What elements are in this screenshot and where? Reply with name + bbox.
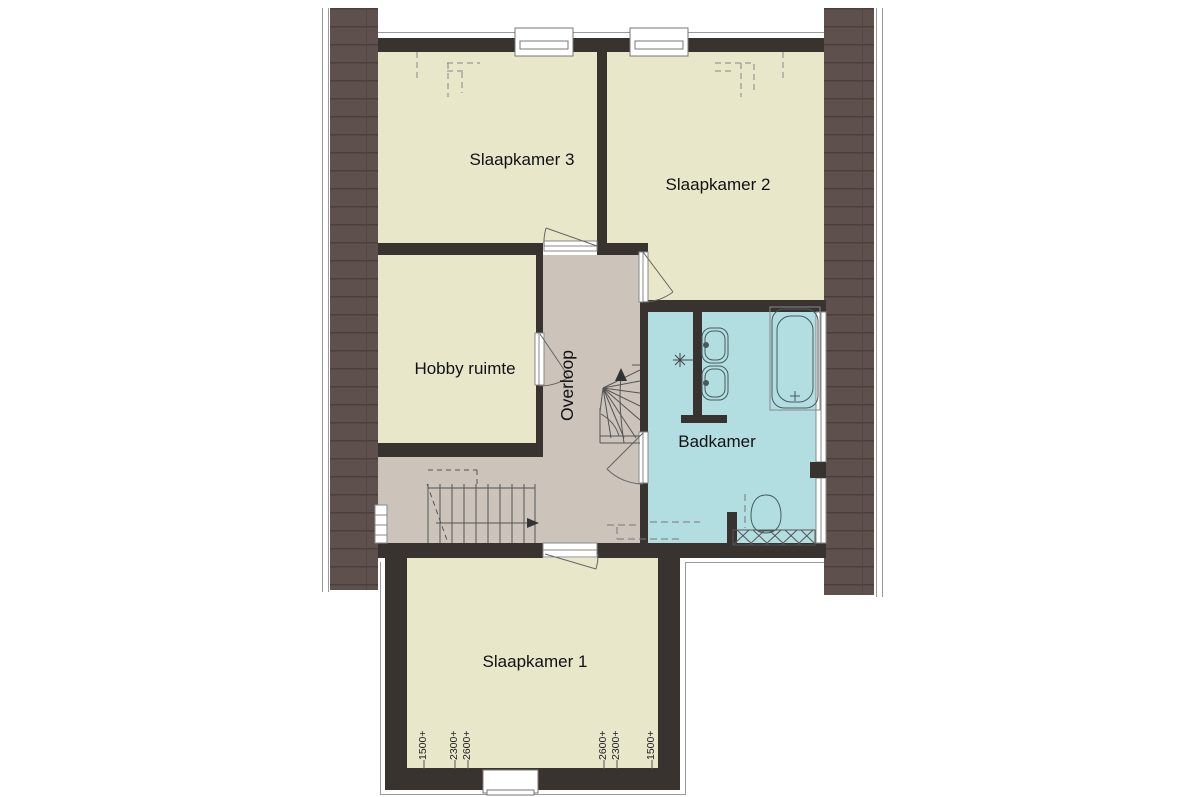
- height-mark-left-3: 2600+: [461, 728, 473, 760]
- straight-staircase: [427, 470, 539, 543]
- winding-staircase: [600, 365, 640, 443]
- partition-wall: [693, 307, 702, 417]
- attic-dashed-lines: [607, 494, 745, 539]
- window-top-right: [630, 28, 688, 56]
- faucet-top: [704, 343, 709, 348]
- partition-foot: [681, 415, 727, 423]
- label-badkamer: Badkamer: [678, 432, 755, 452]
- bathtub: [770, 307, 820, 410]
- wall-stub-toilet: [727, 512, 737, 543]
- height-mark-right-3: 1500+: [645, 728, 657, 760]
- stair-direction-arrow: [527, 518, 539, 528]
- height-mark-left-2: 2300+: [448, 728, 460, 760]
- height-mark-right-1: 2600+: [597, 728, 609, 760]
- dormer-dashed-marks: [417, 52, 783, 97]
- door-badkamer: [607, 433, 643, 484]
- height-mark-left-1: 1500+: [417, 728, 429, 760]
- washbasins: [702, 328, 728, 400]
- wall-stub-window: [810, 462, 826, 478]
- label-slaapkamer-3: Slaapkamer 3: [470, 150, 575, 170]
- bathtub-drain: [790, 391, 800, 401]
- door-thresholds: [535, 241, 648, 557]
- plan-linework: [0, 0, 1200, 797]
- label-hobby-ruimte: Hobby ruimte: [414, 359, 515, 379]
- floor-plan: Slaapkamer 3 Slaapkamer 2 Hobby ruimte O…: [0, 0, 1200, 797]
- toilet: [751, 495, 781, 533]
- faucet-bottom: [704, 381, 709, 386]
- toilet-cistern-hatch: [733, 530, 815, 545]
- height-mark-right-2: 2300+: [610, 728, 622, 760]
- label-slaapkamer-2: Slaapkamer 2: [666, 175, 771, 195]
- height-mark-ticks: [424, 760, 652, 769]
- window-top-left: [515, 28, 573, 56]
- label-slaapkamer-1: Slaapkamer 1: [483, 652, 588, 672]
- window-bottom: [483, 770, 538, 795]
- label-overloop: Overloop: [557, 350, 578, 421]
- winding-stair-arrow: [615, 368, 627, 381]
- light-point-icon: [673, 353, 693, 367]
- window-stair-left: [375, 505, 387, 543]
